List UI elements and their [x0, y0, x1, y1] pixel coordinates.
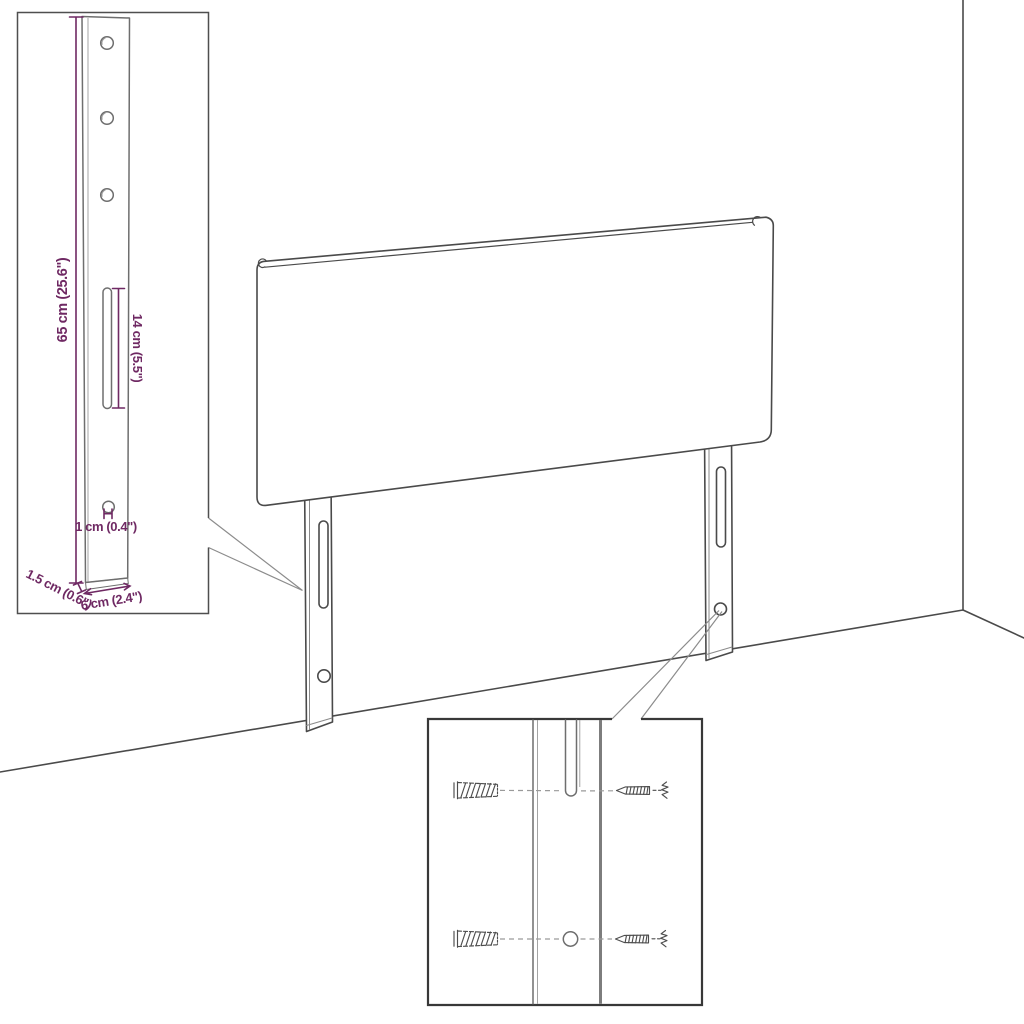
bracket-hole-1 — [101, 37, 114, 50]
screw-top — [617, 782, 669, 798]
floor-line-left — [0, 610, 963, 772]
dimension-slot-label: 14 cm (5.5") — [130, 314, 145, 383]
bracket-hole-3 — [101, 189, 114, 202]
wall-plug-bottom — [454, 930, 498, 947]
dimension-height-label: 65 cm (25.6") — [55, 257, 71, 342]
mounting-hole — [563, 932, 577, 946]
assembly-diagram-canvas: 65 cm (25.6") 14 cm (5.5") 1 cm (0.4") 1… — [0, 0, 1024, 1024]
headboard-panel — [257, 217, 773, 506]
bracket-slot — [103, 288, 112, 409]
floor-line-right — [963, 610, 1024, 638]
dimension-height: 65 cm (25.6") — [55, 17, 83, 583]
bracket-leg — [82, 17, 130, 590]
left-leg-slot — [319, 521, 328, 608]
headboard-assembly-diagram: 65 cm (25.6") 14 cm (5.5") 1 cm (0.4") 1… — [0, 0, 1024, 1024]
headboard-right-leg — [705, 430, 733, 661]
dimension-slot-line — [113, 289, 125, 409]
bracket-inset-callout — [209, 518, 303, 591]
dimension-height-line — [70, 17, 84, 583]
dimension-width: 6 cm (2.4") — [80, 583, 143, 612]
left-leg-hole — [318, 670, 330, 682]
bracket-hole-2 — [101, 112, 114, 125]
mounting-inset — [428, 719, 702, 1005]
bracket-inset: 65 cm (25.6") 14 cm (5.5") 1 cm (0.4") 1… — [18, 13, 209, 614]
bracket-leg-body — [82, 17, 130, 583]
headboard-left-leg — [305, 470, 333, 732]
right-leg-slot — [717, 467, 726, 547]
mounting-leg-strip — [533, 720, 601, 1004]
dimension-hole-label: 1 cm (0.4") — [75, 519, 137, 534]
mounting-slot — [566, 720, 577, 796]
screw-bottom — [616, 931, 668, 947]
dimension-hole-line — [104, 509, 112, 519]
callouts — [209, 518, 723, 719]
wall-plug-top — [454, 782, 498, 799]
